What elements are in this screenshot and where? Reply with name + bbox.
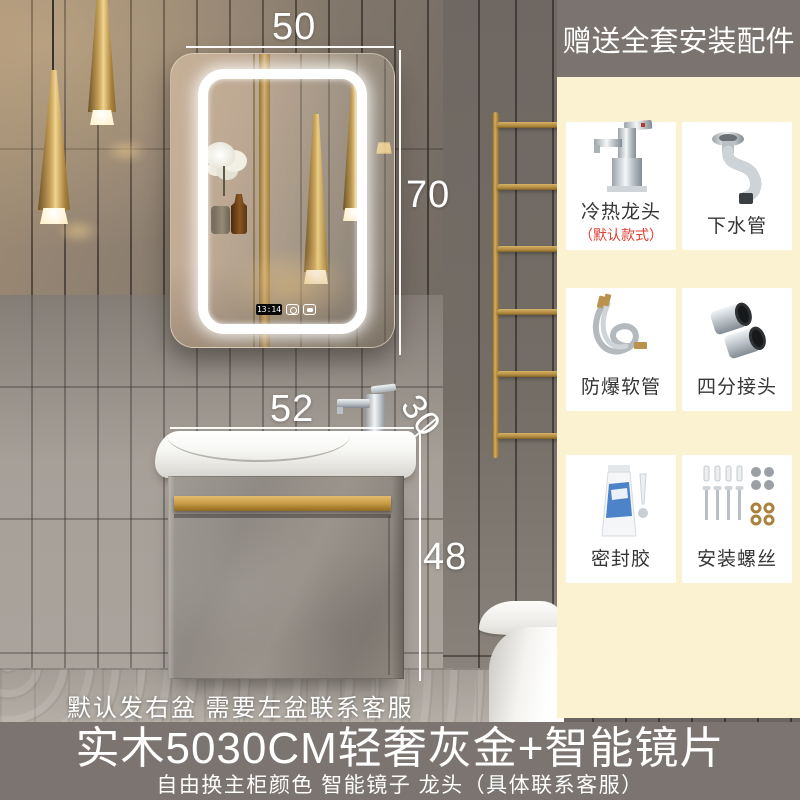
pipe-adapter-icon [682, 288, 792, 372]
accessory-card-adapter: 四分接头 [682, 288, 792, 411]
cabinet-door-seam [388, 516, 390, 675]
product-image: 13:14 50 70 52 30 48 默认发右盆 需 [0, 0, 800, 800]
wall-light-reflection [56, 218, 100, 244]
accessory-card-drain: 下水管 [682, 122, 792, 250]
vanity-cabinet [168, 476, 404, 679]
accessory-note: （默认款式） [579, 225, 663, 245]
product-subtitle: 自由换主柜颜色 智能镜子 龙头（具体联系客服） [156, 774, 643, 798]
cabinet-seam [174, 514, 391, 518]
footer-bar: 实木5030CM轻奢灰金+智能镜片 自由换主柜颜色 智能镜子 龙头（具体联系客服… [0, 722, 800, 800]
accessories-panel: 冷热龙头 （默认款式） 下水管 [557, 77, 800, 718]
toilet [479, 601, 564, 723]
toilet-body [489, 627, 564, 723]
ladder-rung [497, 309, 560, 315]
ladder-rung [497, 433, 560, 439]
dimension-cabinet-height: 48 [423, 536, 467, 579]
dimension-line [186, 46, 394, 48]
basin-orientation-note: 默认发右盆 需要左盆联系客服 [67, 688, 414, 723]
braided-hose-icon [566, 288, 676, 372]
cabinet-gold-trim [174, 496, 391, 511]
accessory-card-sealant: 密封胶 [566, 455, 676, 583]
accessory-label: 密封胶 [591, 544, 651, 571]
mirror-defog-button-icon [286, 304, 299, 315]
accessory-card-screws: 安装螺丝 [682, 455, 792, 583]
gift-banner: 赠送全套安装配件 [557, 0, 800, 77]
dimension-mirror-height: 70 [406, 174, 450, 217]
ladder-pole [492, 112, 499, 458]
dimension-mirror-width: 50 [272, 6, 316, 49]
pendant-light-glow [90, 110, 114, 125]
product-title: 实木5030CM轻奢灰金+智能镜片 [75, 725, 724, 773]
accessory-label: 四分接头 [697, 372, 777, 399]
accessory-label: 安装螺丝 [697, 544, 777, 571]
ladder-towel-rack [492, 112, 562, 462]
accessory-label: 防爆软管 [581, 372, 661, 399]
mirror-light-spark [376, 142, 392, 154]
ladder-rung [497, 246, 560, 252]
mirror-light-button-icon [303, 304, 316, 315]
accessory-label: 冷热龙头 [581, 197, 661, 224]
wall-light-reflection [104, 138, 148, 164]
dimension-line [419, 431, 421, 681]
screws-icon [682, 455, 792, 544]
drain-pipe-icon [682, 122, 792, 211]
ceramic-basin [155, 431, 416, 478]
ladder-rung [497, 371, 560, 377]
accessory-label: 下水管 [707, 211, 767, 238]
dimension-line [170, 427, 414, 429]
mirror-led-ring [198, 69, 367, 334]
faucet-spout-tip [337, 407, 343, 414]
smart-mirror: 13:14 [170, 53, 395, 348]
mirror-clock-display: 13:14 [256, 304, 282, 315]
accessory-card-hose: 防爆软管 [566, 288, 676, 411]
faucet-icon [566, 117, 676, 197]
sealant-icon [566, 455, 676, 544]
accessory-card-faucet: 冷热龙头 （默认款式） [566, 122, 676, 250]
ladder-rung [497, 184, 560, 190]
pendant-cable [52, 0, 54, 74]
dimension-basin-width: 52 [270, 388, 314, 431]
dimension-line [399, 50, 401, 355]
ladder-rung [497, 122, 560, 128]
